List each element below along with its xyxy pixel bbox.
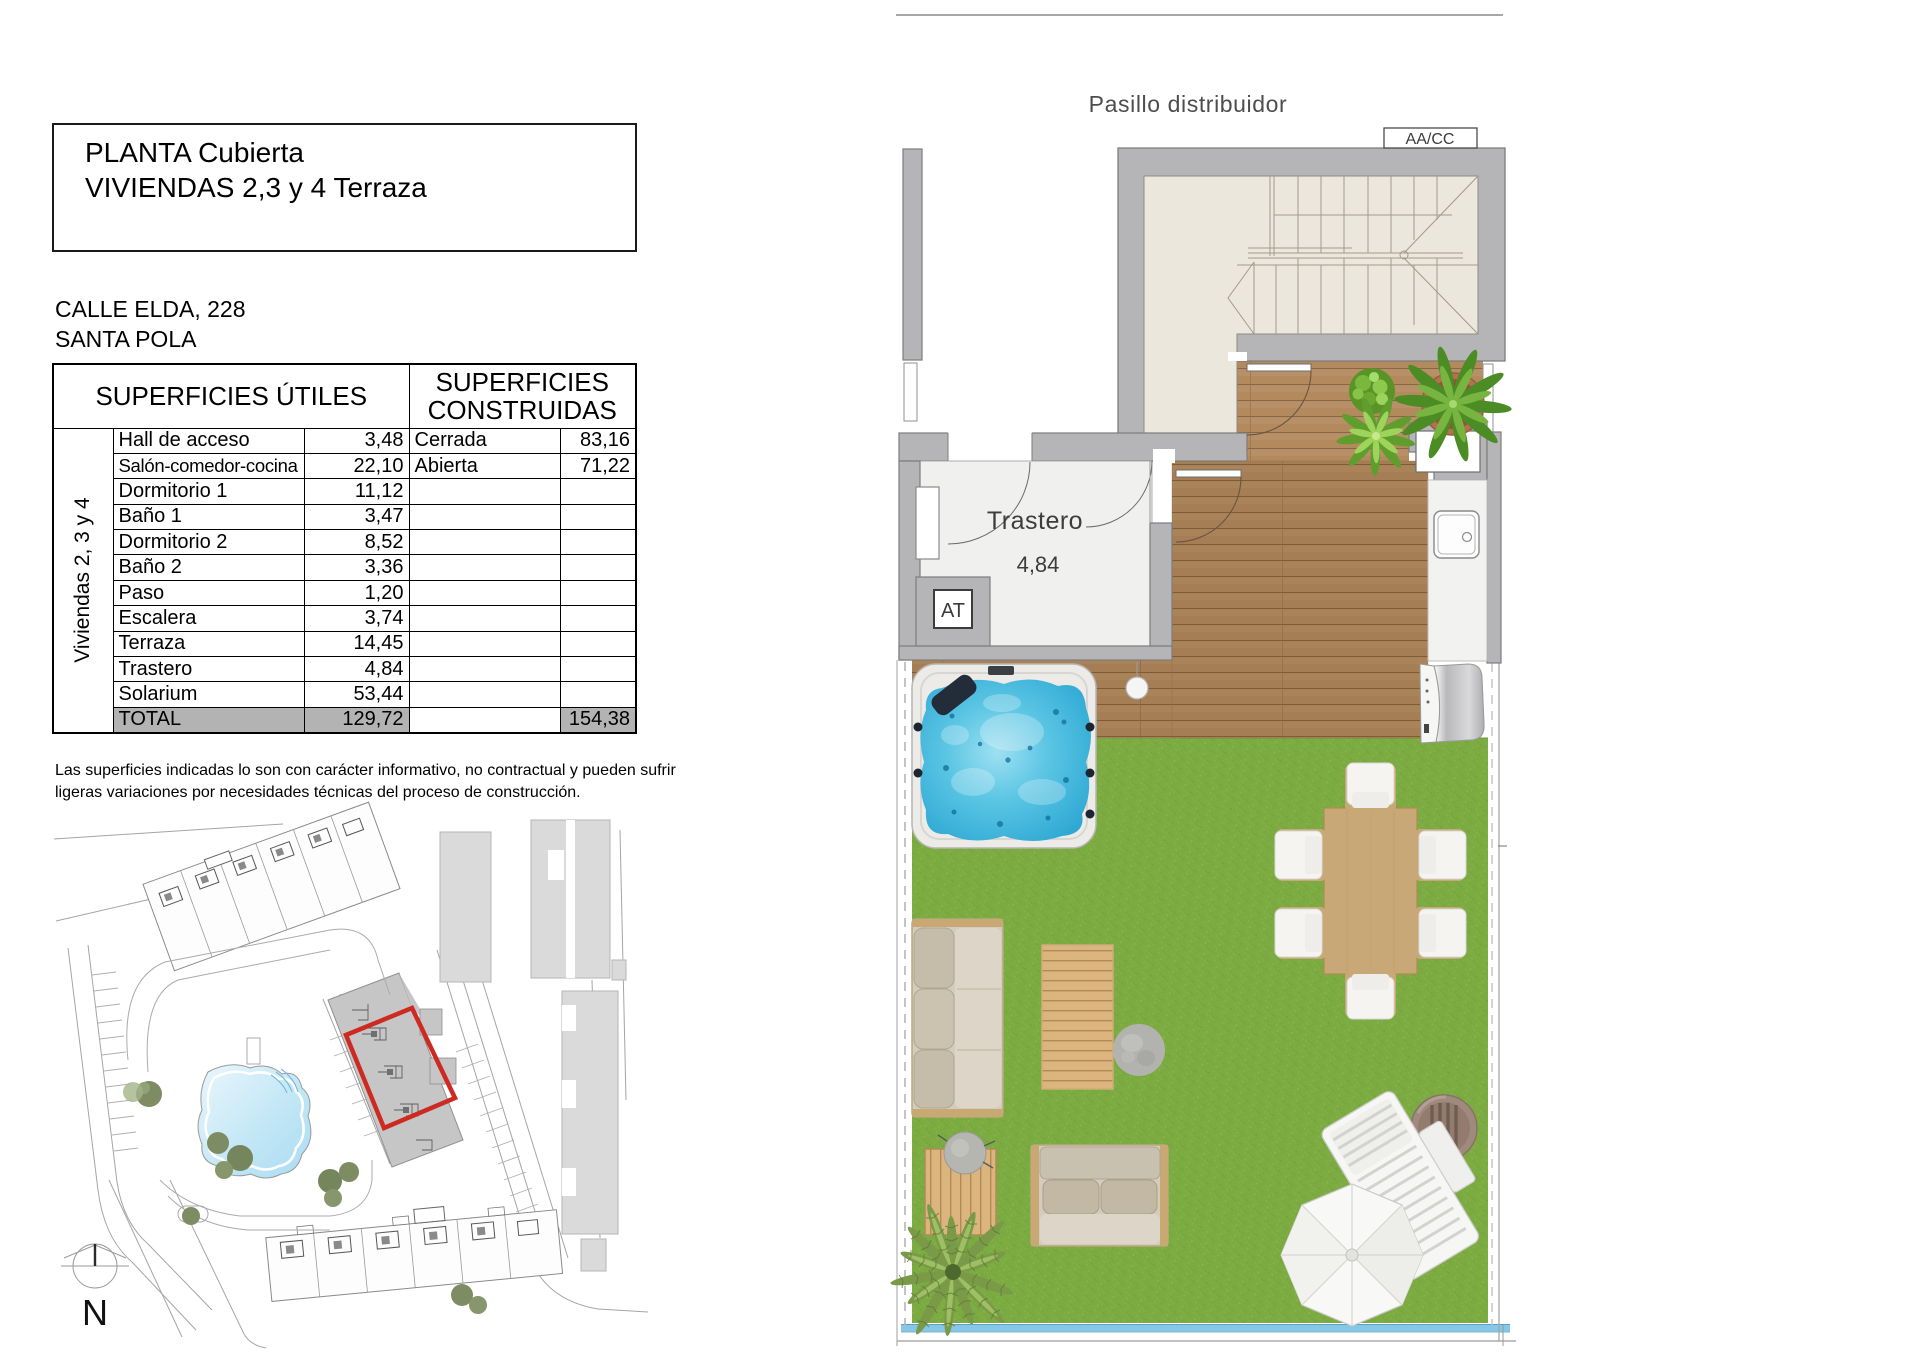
svg-text:4,84: 4,84 — [1017, 552, 1060, 577]
svg-text:N: N — [82, 1292, 108, 1333]
svg-text:Pasillo distribuidor: Pasillo distribuidor — [1089, 91, 1288, 117]
svg-text:Trastero: Trastero — [987, 507, 1083, 535]
svg-text:AA/CC: AA/CC — [1406, 131, 1455, 148]
svg-text:AT: AT — [941, 600, 965, 622]
